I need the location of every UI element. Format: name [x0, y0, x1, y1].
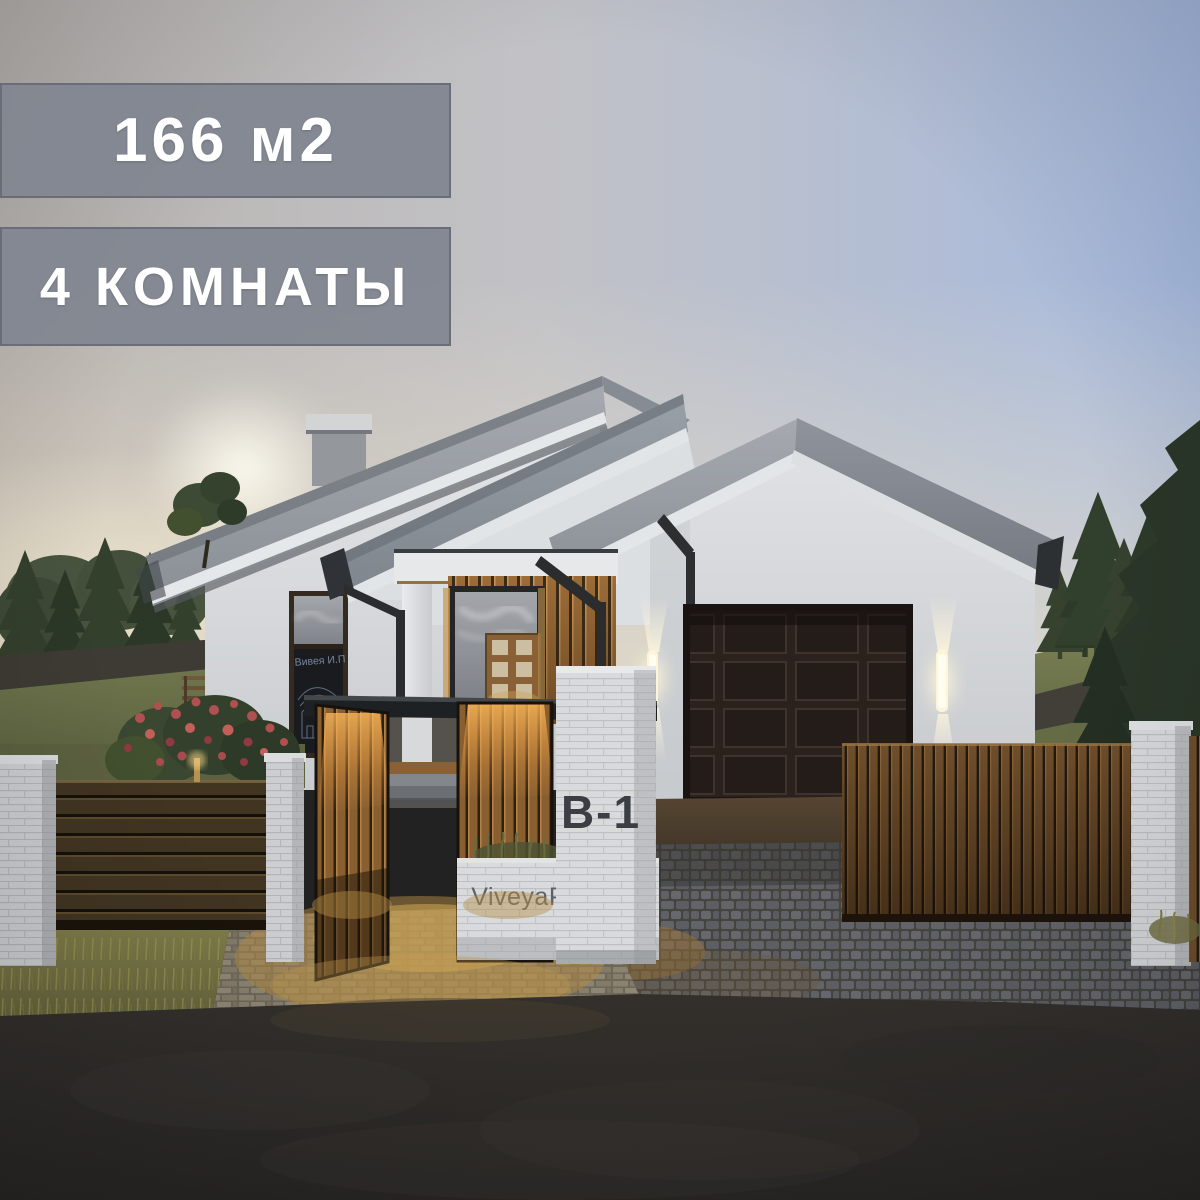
- rooms-badge: 4 КОМНАТЫ: [0, 227, 451, 346]
- render-scene: Вивея И.П: [0, 0, 1200, 1200]
- area-badge: 166 м2: [0, 83, 451, 198]
